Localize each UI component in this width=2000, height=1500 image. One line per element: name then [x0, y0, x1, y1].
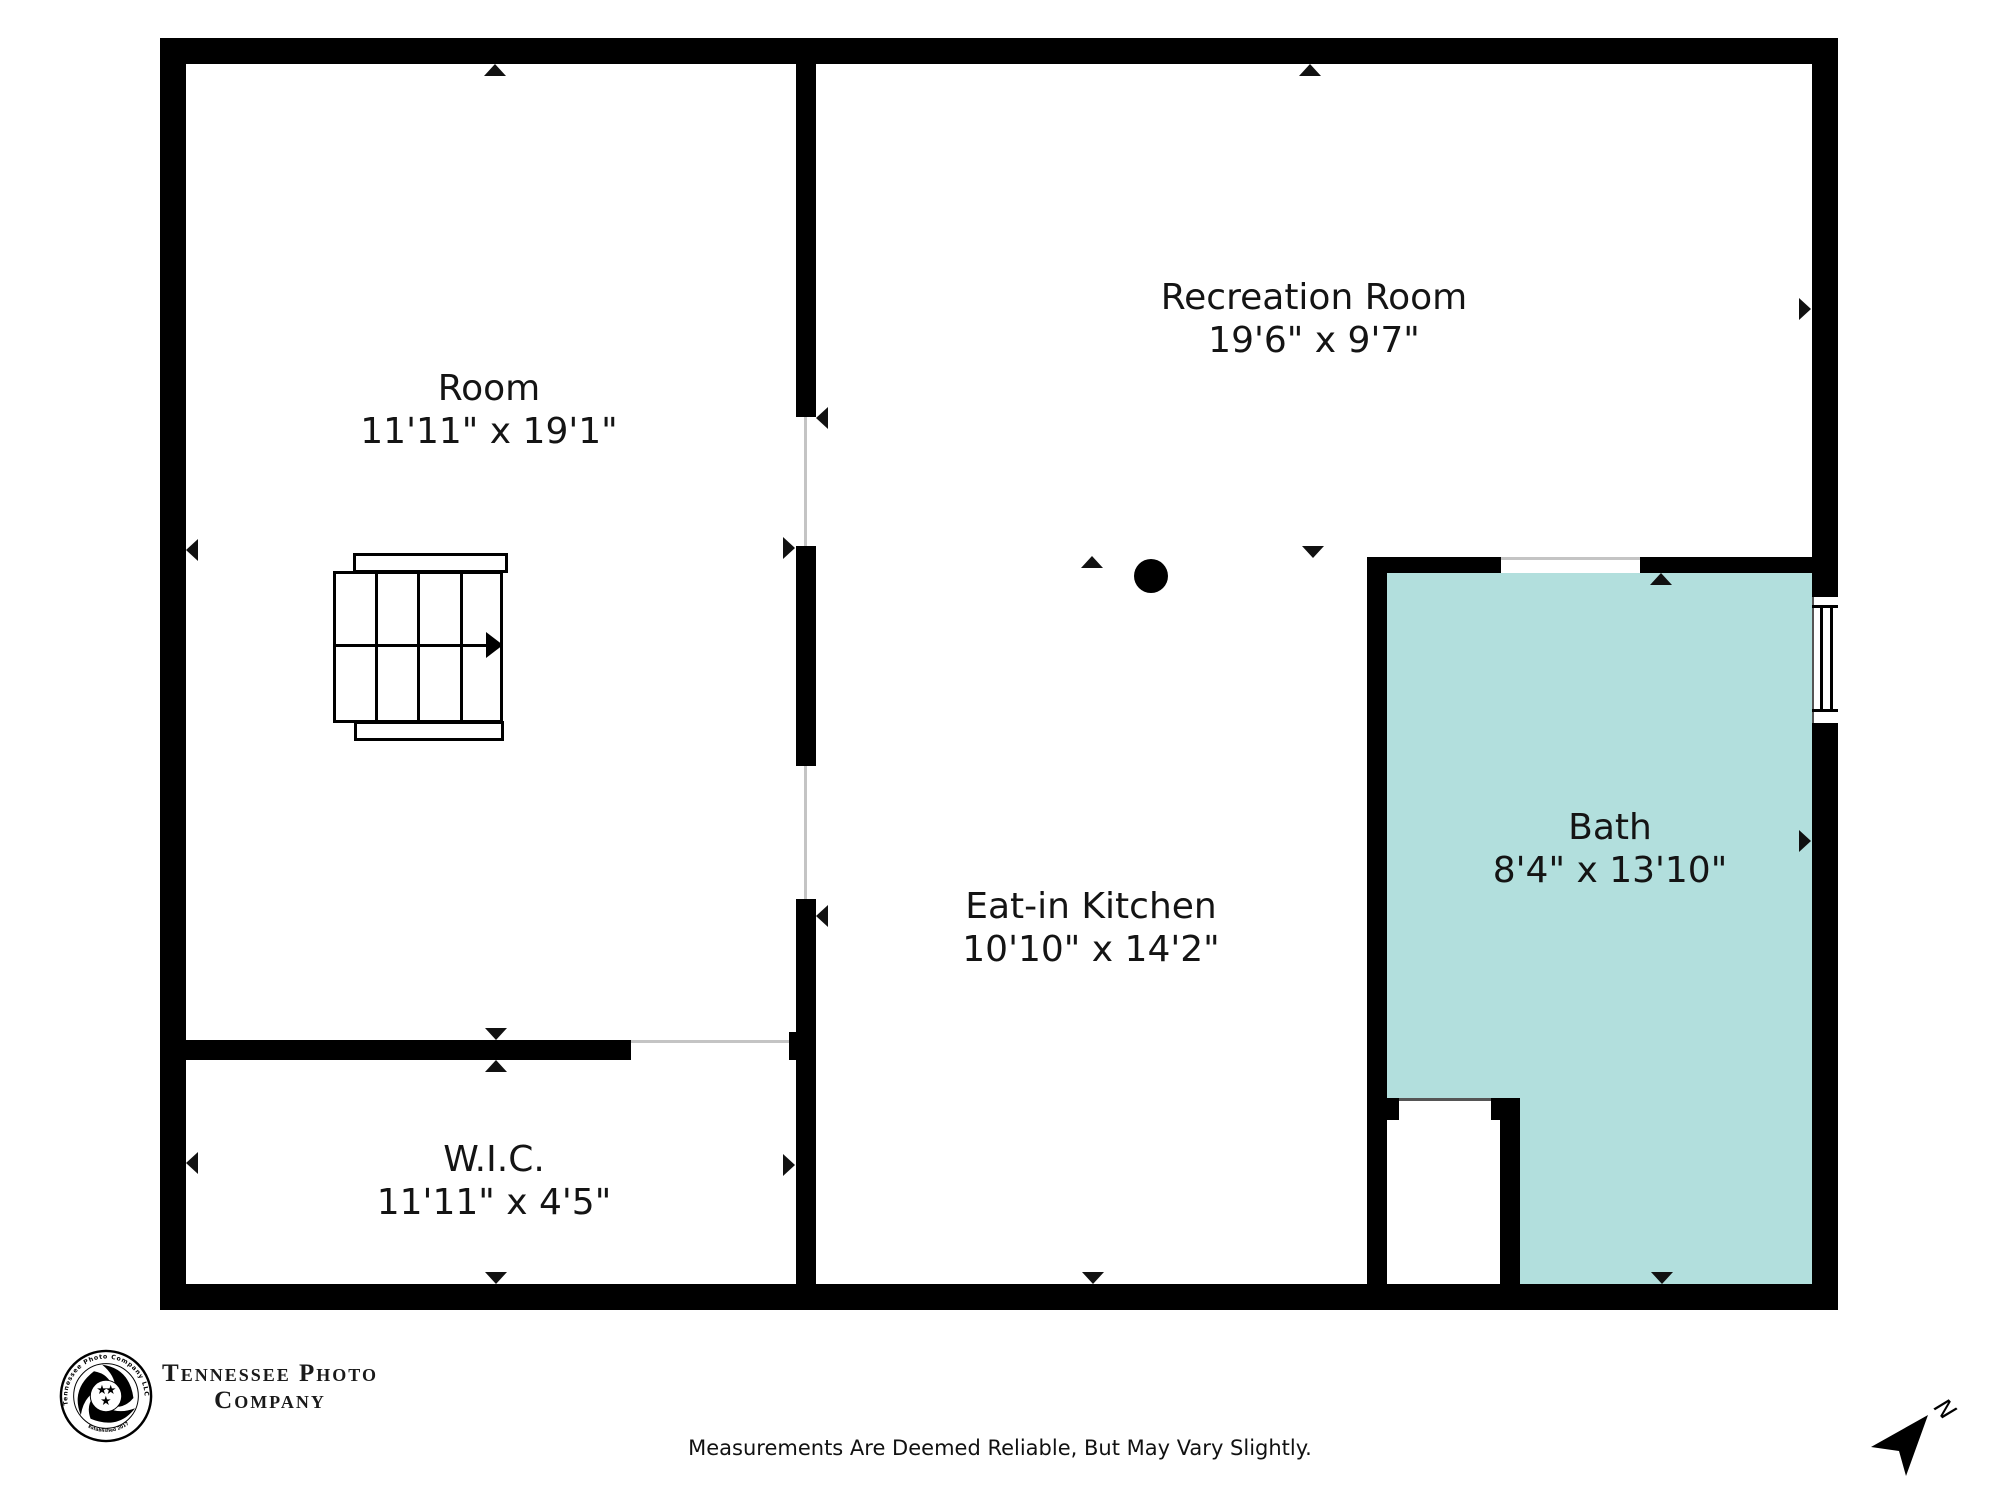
outer-wall-bottom — [160, 1284, 1838, 1310]
measure-arrow-icon — [484, 64, 506, 76]
bath-window-frame-top — [1812, 605, 1838, 608]
floor-plan-page: Room 11'11" x 19'1" Recreation Room 19'6… — [0, 0, 2000, 1500]
wic-top-wall — [186, 1040, 631, 1060]
eat-in-kitchen-label: Eat-in Kitchen 10'10" x 14'2" — [962, 885, 1219, 971]
room-name: Eat-in Kitchen — [962, 885, 1219, 928]
company-wordmark-line2: Company — [155, 1387, 385, 1414]
measure-arrow-icon — [1082, 1272, 1104, 1284]
bath-window-inner-edge — [1812, 597, 1814, 723]
closet-door-jamb — [1385, 1098, 1399, 1120]
measure-arrow-icon — [1651, 1272, 1673, 1284]
stairs-direction-line — [336, 644, 488, 647]
measure-arrow-icon — [186, 1152, 198, 1174]
stairs-bottom-landing — [354, 721, 504, 741]
wic-label: W.I.C. 11'11" x 4'5" — [377, 1138, 612, 1224]
company-wordmark-line1: Tennessee Photo — [155, 1360, 385, 1387]
room-dimensions: 8'4" x 13'10" — [1493, 849, 1728, 892]
measure-arrow-icon — [1799, 298, 1811, 320]
recreation-room-label: Recreation Room 19'6" x 9'7" — [1161, 276, 1467, 362]
bath-label: Bath 8'4" x 13'10" — [1493, 806, 1728, 892]
company-logo-emblem-icon: ★ ★ ★ Tennessee Photo Company LLC Establ… — [57, 1347, 155, 1445]
wic-door-jamb — [789, 1032, 816, 1060]
interior-wall-room-middle — [796, 546, 816, 766]
outer-wall-left — [160, 38, 186, 1310]
closet-right-wall — [1500, 1098, 1520, 1284]
opening-line-wic-door — [631, 1040, 796, 1043]
room-name: W.I.C. — [377, 1138, 612, 1181]
measure-arrow-icon — [485, 1272, 507, 1284]
stairs-tread-line-2 — [417, 574, 420, 720]
bath-window-frame-bottom — [1812, 709, 1838, 712]
measure-arrow-icon — [186, 539, 198, 561]
measure-arrow-icon — [783, 537, 795, 559]
measure-arrow-icon — [1081, 556, 1103, 568]
measure-arrow-icon — [1299, 64, 1321, 76]
stairs-tread-line-3 — [460, 574, 463, 720]
bath-top-wall-right-segment — [1640, 557, 1812, 573]
measure-arrow-icon — [485, 1060, 507, 1072]
support-column — [1134, 559, 1168, 593]
measure-arrow-icon — [783, 1154, 795, 1176]
stairs-tread-line-1 — [375, 574, 378, 720]
measure-arrow-icon — [816, 407, 828, 429]
room-name: Recreation Room — [1161, 276, 1467, 319]
room-dimensions: 11'11" x 4'5" — [377, 1181, 612, 1224]
north-label: N — [1929, 1393, 1962, 1425]
opening-line-bath-door — [1501, 557, 1640, 560]
bath-window-pane-left — [1820, 605, 1823, 712]
room-dimensions: 10'10" x 14'2" — [962, 928, 1219, 971]
opening-line-room-recroom — [804, 417, 807, 546]
room-label: Room 11'11" x 19'1" — [360, 367, 617, 453]
interior-wall-room-upper — [796, 64, 816, 417]
bath-window — [1812, 597, 1838, 723]
bath-closet-cutout — [1387, 1100, 1500, 1284]
bath-top-wall-left-segment — [1367, 557, 1501, 573]
north-arrow-icon: N — [1855, 1380, 1965, 1490]
svg-text:★: ★ — [100, 1394, 111, 1409]
measure-arrow-icon — [1650, 573, 1672, 585]
room-dimensions: 19'6" x 9'7" — [1161, 319, 1467, 362]
disclaimer-text: Measurements Are Deemed Reliable, But Ma… — [688, 1436, 1312, 1460]
measure-arrow-icon — [816, 905, 828, 927]
bath-window-pane-right — [1830, 605, 1833, 712]
measure-arrow-icon — [1302, 546, 1324, 558]
company-wordmark: Tennessee Photo Company — [155, 1360, 385, 1414]
outer-wall-top — [160, 38, 1838, 64]
room-name: Room — [360, 367, 617, 410]
stairs-direction-arrow-icon — [486, 632, 503, 658]
measure-arrow-icon — [1799, 830, 1811, 852]
room-dimensions: 11'11" x 19'1" — [360, 410, 617, 453]
measure-arrow-icon — [485, 1028, 507, 1040]
bath-left-wall — [1367, 557, 1387, 1284]
stairs-top-landing — [353, 553, 508, 573]
room-name: Bath — [1493, 806, 1728, 849]
opening-line-closet-door — [1399, 1098, 1491, 1101]
opening-line-kitchen-entry — [804, 766, 807, 899]
interior-wall-kitchen-lower — [796, 899, 816, 1284]
